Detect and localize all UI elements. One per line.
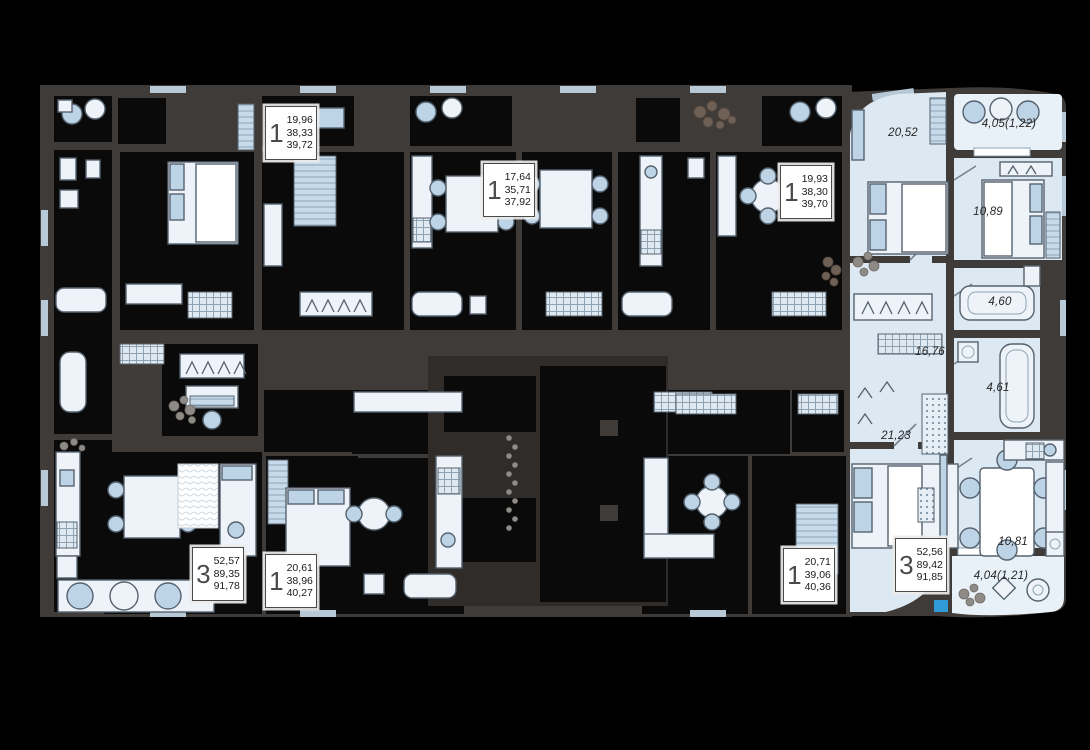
room-label-balcony-top: 4,05(1,22) (982, 118, 1036, 130)
unit-rooms-count: 1 (269, 568, 283, 594)
unit-rooms-count: 3 (196, 561, 210, 587)
unit-rooms-count: 1 (269, 120, 283, 146)
unit-area-1: 19,93 (802, 173, 828, 185)
room-label-balcony-bottom: 4,04(1,21) (974, 570, 1028, 582)
unit-area-3: 40,27 (287, 587, 313, 599)
unit-info-box-3[interactable]: 1 19,93 38,30 39,70 (780, 165, 832, 219)
unit-area-2: 89,35 (214, 568, 240, 580)
unit-area-2: 39,06 (805, 569, 831, 581)
unit-area-3: 91,78 (214, 580, 240, 592)
floor-plan-canvas: 20,52 4,05(1,22) 10,89 4,60 4,61 16,76 2… (0, 0, 1090, 750)
room-label-living: 20,52 (888, 127, 918, 139)
unit-rooms-count: 1 (784, 179, 798, 205)
floor-plan-drawing (0, 0, 1090, 750)
unit-info-box-5[interactable]: 1 20,61 38,96 40,27 (265, 554, 317, 608)
unit-area-2: 89,42 (917, 559, 943, 571)
unit-info-box-2[interactable]: 1 17,64 35,71 37,92 (483, 163, 535, 217)
room-label-room-2: 21,23 (881, 430, 911, 442)
stair-elevator-core (428, 356, 668, 606)
unit-area-2: 35,71 (505, 184, 531, 196)
room-label-kitchen: 10,81 (998, 536, 1028, 548)
room-label-bedroom: 10,89 (973, 206, 1003, 218)
unit-rooms-count: 3 (899, 552, 913, 578)
room-label-hallway: 16,76 (915, 346, 945, 358)
unit-area-1: 17,64 (505, 171, 531, 183)
highlighted-apartment[interactable] (850, 92, 1064, 615)
unit-area-3: 40,36 (805, 581, 831, 593)
unit-area-3: 91,85 (917, 571, 943, 583)
unit-area-3: 37,92 (505, 196, 531, 208)
unit-area-1: 20,71 (805, 556, 831, 568)
unit-area-3: 39,72 (287, 139, 313, 151)
unit-area-1: 52,57 (214, 555, 240, 567)
unit-rooms-count: 1 (487, 177, 501, 203)
unit-area-1: 19,96 (287, 114, 313, 126)
room-label-bath-1: 4,60 (988, 296, 1011, 308)
unit-area-1: 52,56 (917, 546, 943, 558)
unit-area-2: 38,96 (287, 575, 313, 587)
unit-area-2: 38,30 (802, 186, 828, 198)
room-label-bath-2: 4,61 (986, 382, 1009, 394)
unit-info-box-4[interactable]: 3 52,57 89,35 91,78 (192, 547, 244, 601)
unit-area-1: 20,61 (287, 562, 313, 574)
entrance-marker (934, 600, 948, 612)
unit-info-box-6[interactable]: 1 20,71 39,06 40,36 (783, 548, 835, 602)
unit-rooms-count: 1 (787, 562, 801, 588)
unit-info-box-1[interactable]: 1 19,96 38,33 39,72 (265, 106, 317, 160)
unit-area-2: 38,33 (287, 127, 313, 139)
unit-area-3: 39,70 (802, 198, 828, 210)
unit-info-box-7[interactable]: 3 52,56 89,42 91,85 (895, 538, 947, 592)
